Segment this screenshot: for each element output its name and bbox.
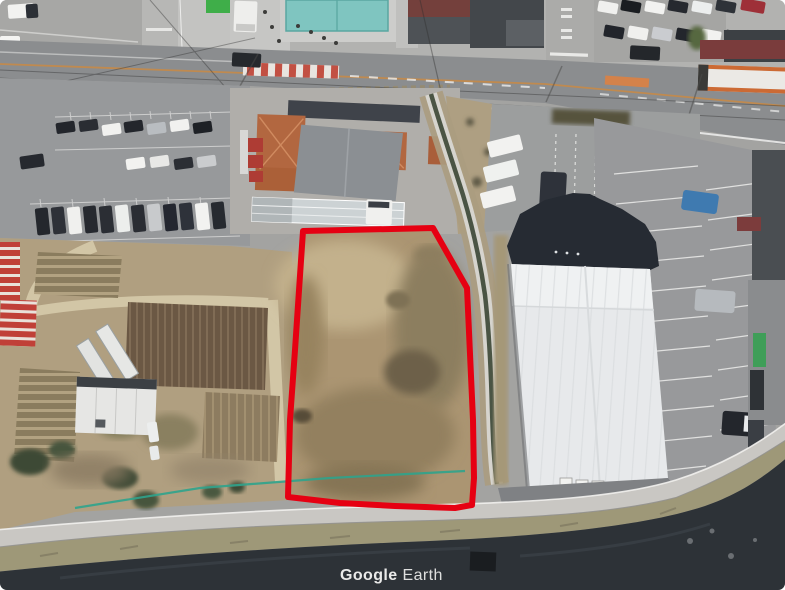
white-farm-building xyxy=(75,377,157,436)
silver-car xyxy=(694,289,735,314)
greenhouse-strip xyxy=(252,195,405,226)
canal-bank-strip xyxy=(494,235,508,485)
red-awnings xyxy=(248,138,263,182)
crop-fields xyxy=(0,238,292,530)
tilled-field-dark xyxy=(125,302,268,390)
green-shed-roof xyxy=(206,0,230,13)
google-earth-viewport[interactable]: GoogleEarth xyxy=(0,0,785,590)
watermark-product: Earth xyxy=(403,567,443,584)
aerial-imagery-canvas[interactable]: GoogleEarth xyxy=(0,0,785,590)
dark-roof-a xyxy=(408,17,470,44)
red-striped-greenhouse xyxy=(0,242,20,300)
watermark-brand: Google xyxy=(340,567,398,584)
row-crop-field xyxy=(34,252,122,298)
car-on-road xyxy=(630,45,661,61)
left-parking-lot xyxy=(0,78,250,246)
google-earth-watermark: GoogleEarth xyxy=(340,567,443,584)
tilled-field-light xyxy=(202,392,280,462)
maroon-strip-roof xyxy=(700,40,785,59)
green-truck xyxy=(753,333,766,367)
maroon-roof xyxy=(408,0,470,17)
culvert-gap xyxy=(470,552,497,572)
vacant-parcel-soil xyxy=(275,228,474,508)
red-striped-greenhouse xyxy=(0,299,37,346)
